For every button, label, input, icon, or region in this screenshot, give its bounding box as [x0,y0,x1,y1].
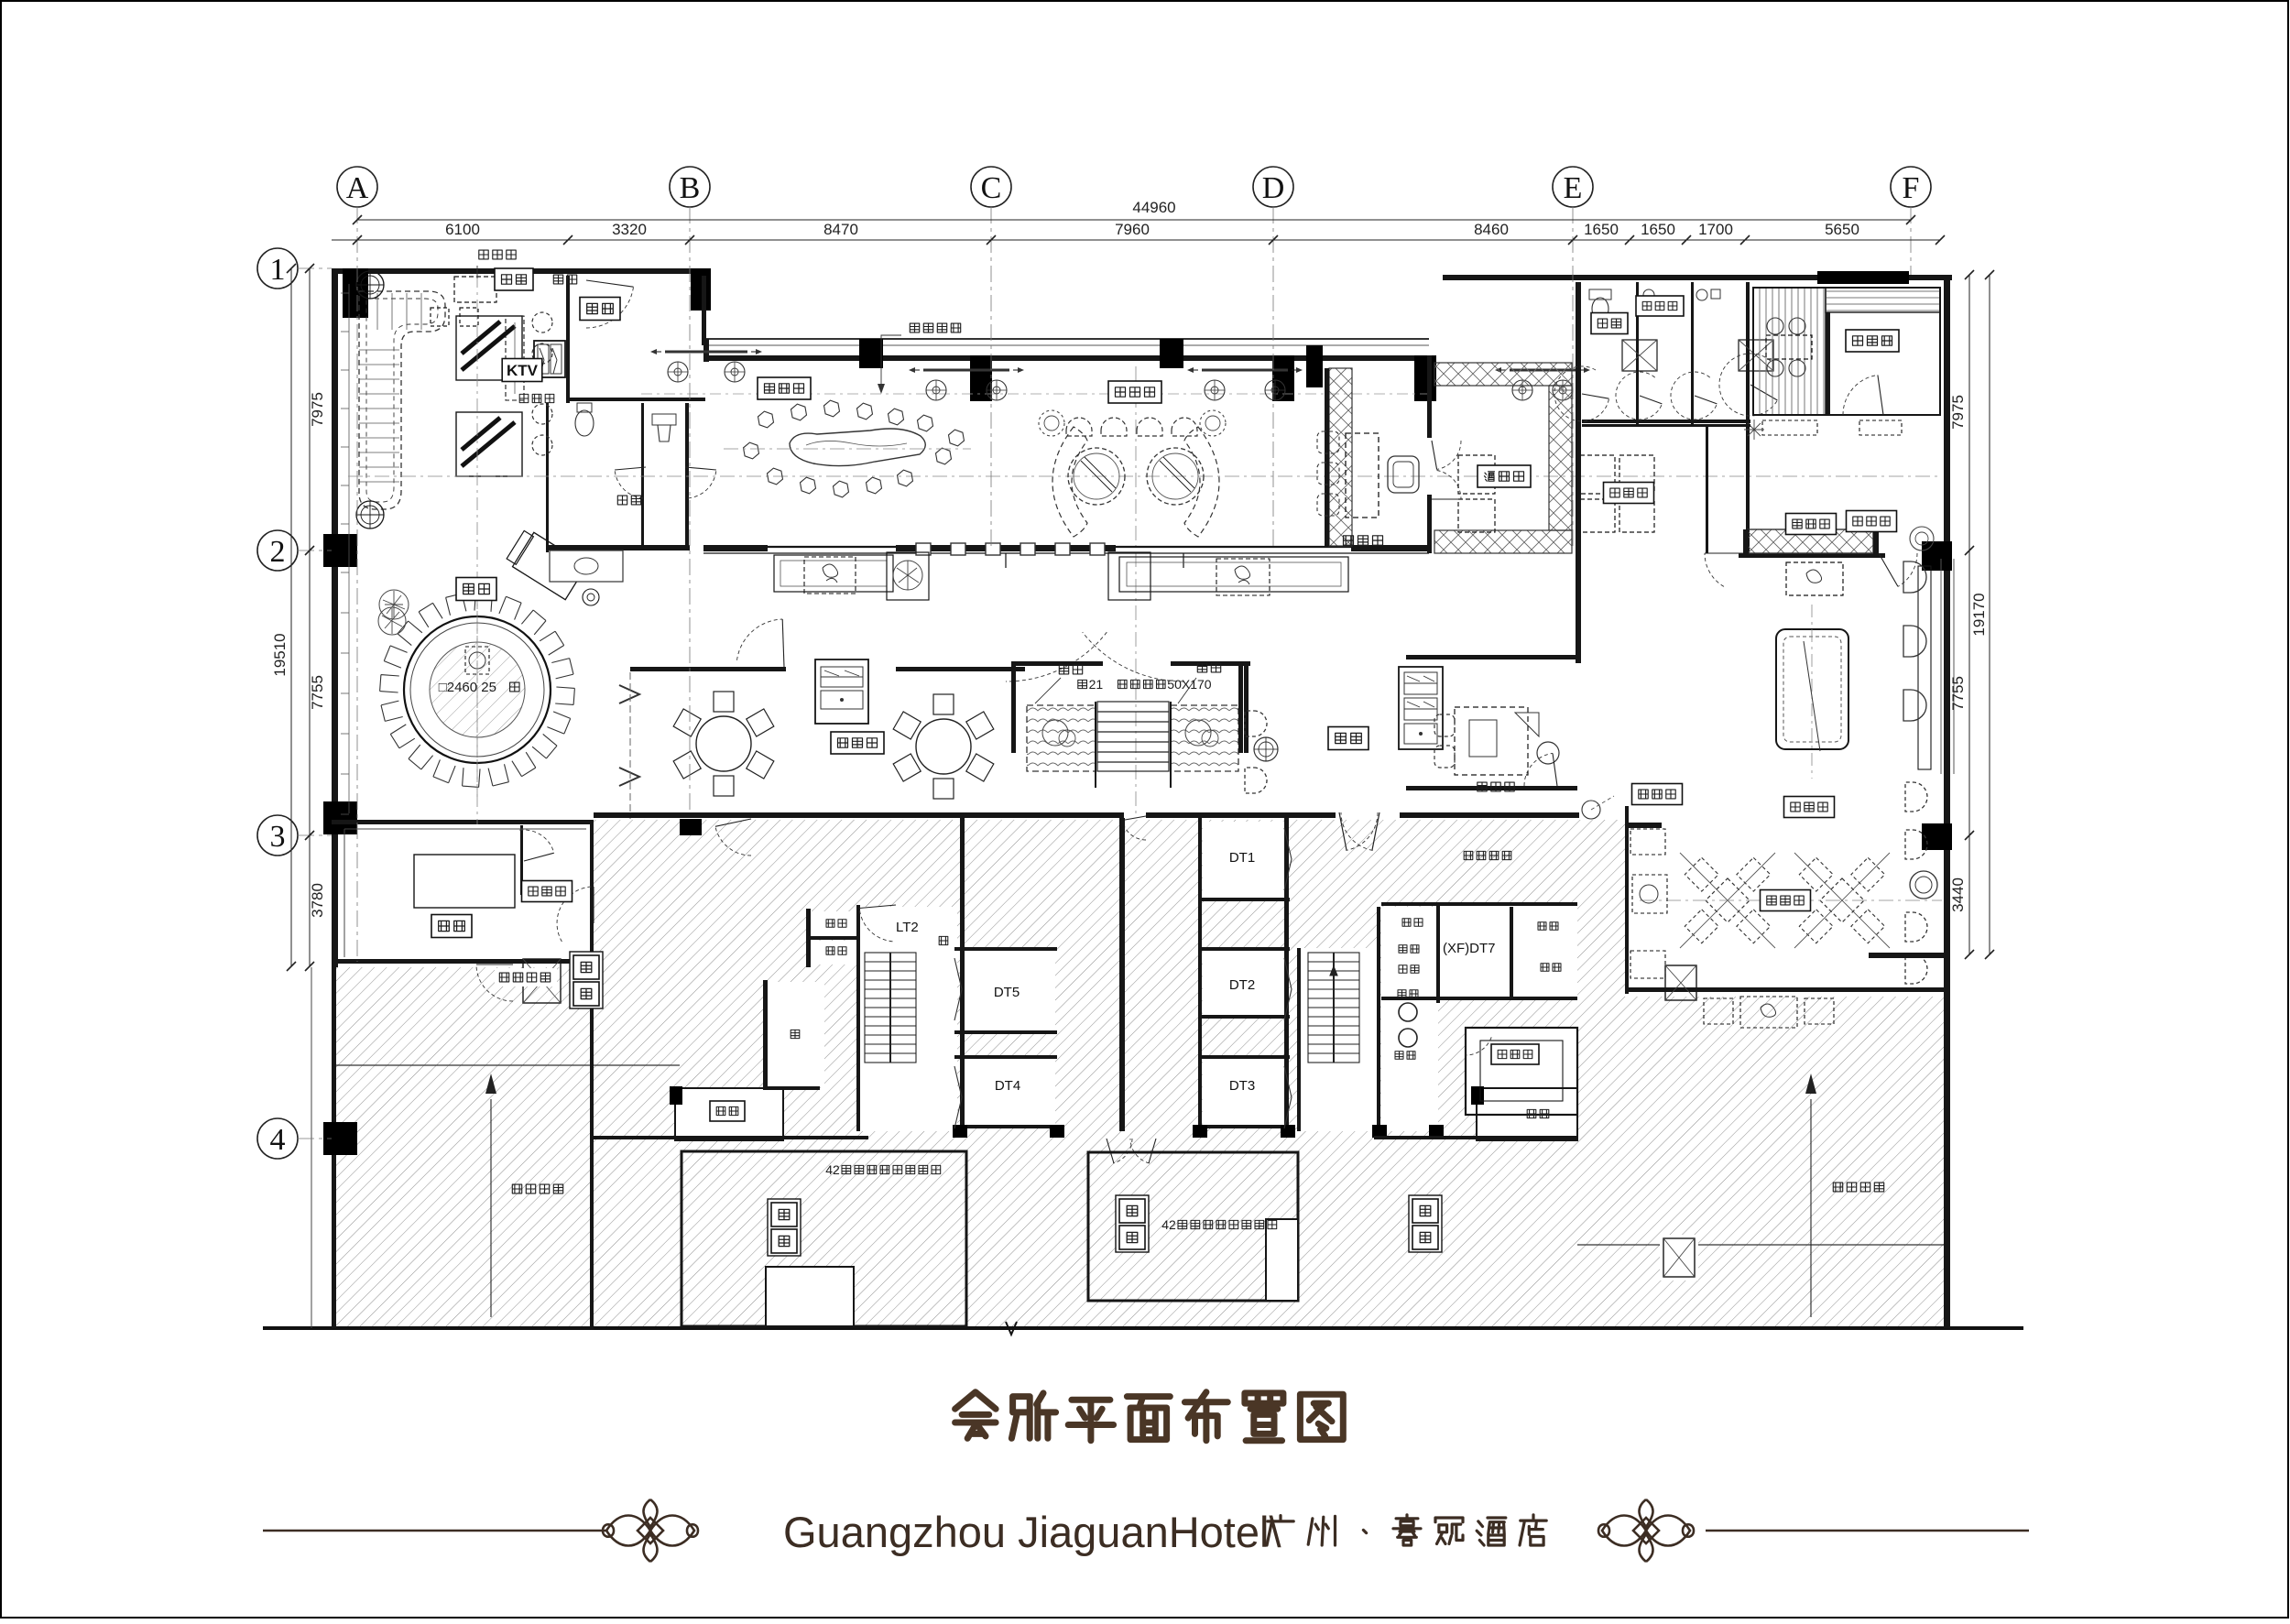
svg-text:2: 2 [270,535,286,569]
svg-text:1650: 1650 [1641,221,1675,238]
svg-text:DT2: DT2 [1229,977,1255,993]
svg-text:19170: 19170 [1970,593,1988,636]
svg-text:DT4: DT4 [995,1078,1020,1094]
svg-text:F: F [1903,171,1920,205]
svg-text:7975: 7975 [309,392,326,427]
svg-text:Guangzhou JiaguanHotel\: Guangzhou JiaguanHotel\ [783,1508,1281,1556]
svg-text:1650: 1650 [1584,221,1619,238]
svg-text:DT5: DT5 [994,985,1020,1000]
svg-text:8470: 8470 [823,221,858,238]
svg-text:3: 3 [270,820,286,854]
svg-text:50X170: 50X170 [1167,677,1211,692]
svg-text:□2460 25: □2460 25 [439,680,496,695]
svg-text:A: A [346,171,369,205]
svg-text:E: E [1564,171,1583,205]
svg-text:4: 4 [270,1123,286,1157]
svg-text:42: 42 [825,1162,840,1177]
svg-text:1: 1 [270,253,286,287]
svg-text:KTV: KTV [507,362,539,379]
svg-text:8460: 8460 [1474,221,1509,238]
svg-text:D: D [1262,171,1285,205]
svg-text:7755: 7755 [309,675,326,710]
svg-text:B: B [680,171,701,205]
svg-text:19510: 19510 [271,633,289,676]
svg-text:5650: 5650 [1825,221,1859,238]
svg-text:42: 42 [1161,1217,1176,1232]
svg-text:DT1: DT1 [1229,850,1255,866]
svg-text:1700: 1700 [1698,221,1733,238]
svg-text:6100: 6100 [445,221,480,238]
svg-text:DT3: DT3 [1229,1078,1255,1094]
svg-text:7755: 7755 [1949,676,1967,711]
svg-text:3780: 3780 [309,883,326,918]
svg-text:3320: 3320 [612,221,647,238]
svg-text:7975: 7975 [1949,395,1967,430]
svg-text:44960: 44960 [1132,199,1175,216]
svg-text:3440: 3440 [1949,877,1967,912]
svg-text:(XF)DT7: (XF)DT7 [1443,941,1496,956]
svg-text:C: C [981,171,1002,205]
svg-text:7960: 7960 [1115,221,1150,238]
svg-text:21: 21 [1089,677,1104,692]
svg-text:LT2: LT2 [896,920,919,935]
